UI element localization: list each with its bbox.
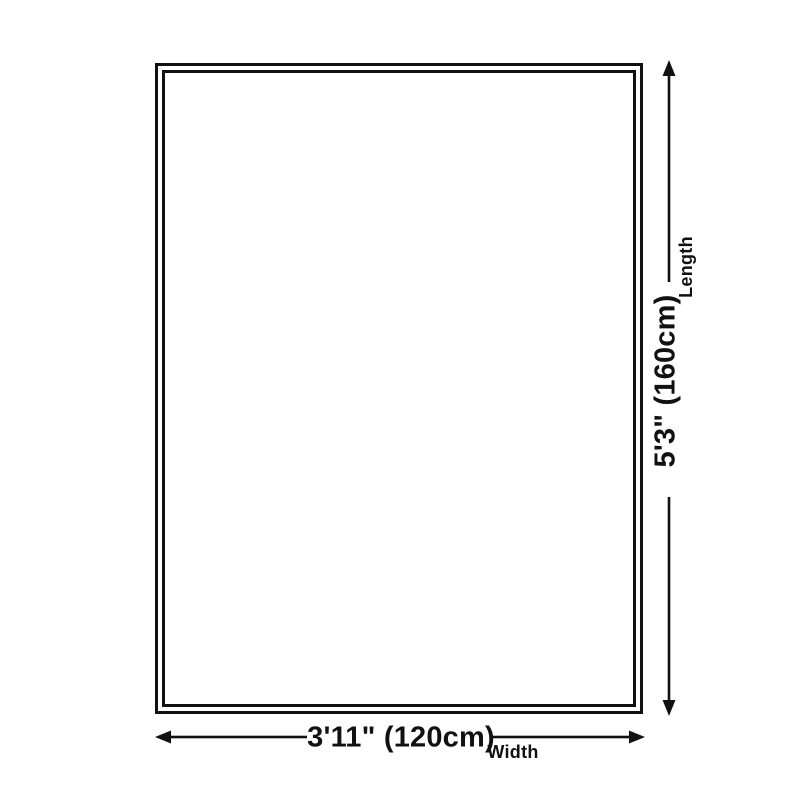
rug-dimension-diagram: 5'3" (160cm) Length 3'11" (120cm) Width <box>0 0 800 800</box>
arrowhead-up-icon <box>663 60 676 76</box>
width-label: Width <box>487 743 538 761</box>
length-arrow-lower-line <box>668 497 671 705</box>
arrowhead-left-icon <box>155 731 171 744</box>
length-label: Length <box>677 236 695 298</box>
rug-inner-outline <box>162 70 636 707</box>
width-value: 3'11" (120cm) <box>307 724 495 753</box>
length-value: 5'3" (160cm) <box>652 295 681 468</box>
width-arrow-right-line <box>492 736 629 739</box>
arrowhead-right-icon <box>629 731 645 744</box>
length-arrow-upper-line <box>668 74 671 282</box>
arrowhead-down-icon <box>663 700 676 716</box>
width-arrow-left-line <box>170 736 307 739</box>
rug-outline <box>155 63 643 714</box>
